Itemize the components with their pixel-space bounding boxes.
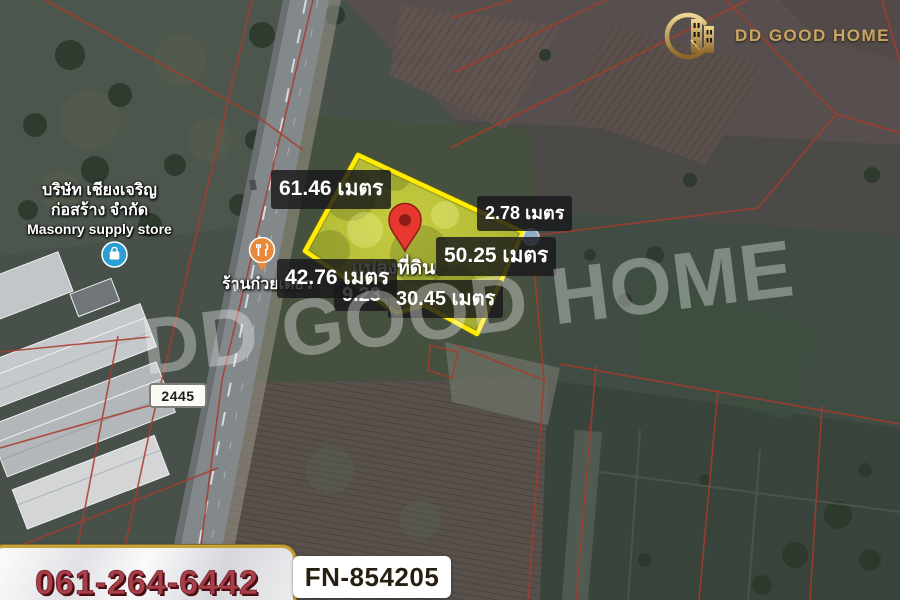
brand-emblem-icon	[662, 6, 726, 66]
phone-number: 061-264-6442	[27, 564, 259, 600]
measurement-label-4: 42.76 เมตร	[277, 259, 397, 298]
store-icon	[101, 241, 128, 268]
phone-banner: 061-264-6442	[0, 545, 296, 600]
measurement-label-2: 2.78 เมตร	[477, 196, 572, 231]
measurement-label-6: 30.45 เมตร	[388, 280, 503, 318]
restaurant-icon	[248, 237, 276, 275]
poi-category: Masonry supply store	[12, 221, 187, 238]
measurement-label-1: 61.46 เมตร	[271, 170, 391, 209]
brand-logo: DD GOOD HOME	[662, 6, 890, 66]
poi-name-line1: บริษัท เชียงเจริญ	[42, 182, 157, 199]
listing-code-box: FN-854205	[293, 556, 451, 598]
listing-code: FN-854205	[305, 562, 440, 593]
brand-logo-text: DD GOOD HOME	[735, 26, 890, 46]
poi-label-masonry-company: บริษัท เชียงเจริญ ก่อสร้าง จำกัด Masonry…	[12, 181, 187, 238]
measurement-label-3: 50.25 เมตร	[436, 237, 556, 276]
road-number-badge: 2445	[149, 383, 207, 408]
property-listing-image: บริษัท เชียงเจริญ ก่อสร้าง จำกัด Masonry…	[0, 0, 900, 600]
poi-name-line2: ก่อสร้าง จำกัด	[51, 202, 148, 219]
